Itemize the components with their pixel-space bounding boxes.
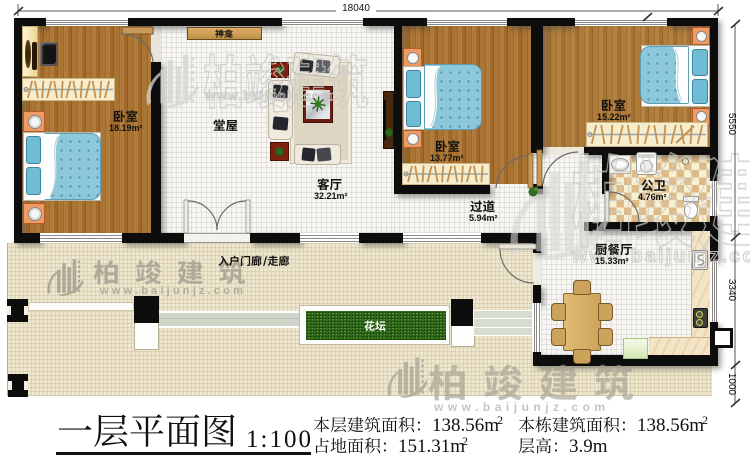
svg-text:138.56m: 138.56m <box>637 415 704 436</box>
svg-text:3340: 3340 <box>726 279 737 302</box>
svg-text:3.9m: 3.9m <box>569 436 608 457</box>
svg-text:151.31m: 151.31m <box>398 436 465 457</box>
svg-text:32.21m²: 32.21m² <box>314 191 348 201</box>
svg-text:15.22m²: 15.22m² <box>597 112 631 122</box>
svg-text:18.19m²: 18.19m² <box>109 123 143 133</box>
svg-text:15.33m²: 15.33m² <box>595 256 629 266</box>
svg-text:2: 2 <box>702 413 708 427</box>
svg-text:1000: 1000 <box>726 373 737 396</box>
svg-text:138.56m: 138.56m <box>432 415 499 436</box>
svg-text:18040: 18040 <box>342 3 370 14</box>
svg-text:2: 2 <box>462 434 468 448</box>
svg-text:5.94m²: 5.94m² <box>469 213 498 223</box>
svg-text:2: 2 <box>497 413 503 427</box>
svg-text:4.76m²: 4.76m² <box>638 192 667 202</box>
svg-text:13.77m²: 13.77m² <box>430 153 464 163</box>
svg-text:5550: 5550 <box>726 113 737 136</box>
svg-text:1:100: 1:100 <box>246 426 313 453</box>
